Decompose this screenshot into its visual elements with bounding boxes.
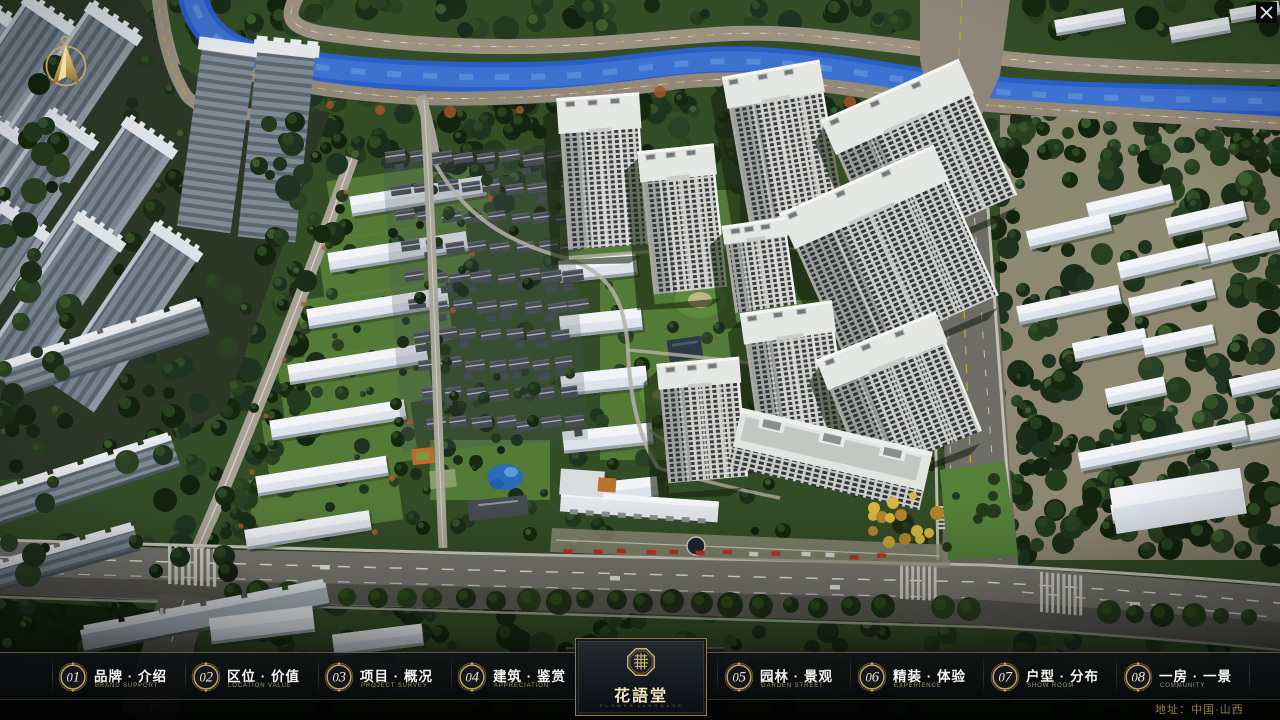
svg-text:04: 04 <box>465 670 479 686</box>
svg-text:01: 01 <box>66 670 80 686</box>
svg-text:02: 02 <box>199 670 213 686</box>
svg-text:07: 07 <box>998 670 1012 686</box>
svg-text:05: 05 <box>732 670 746 686</box>
svg-text:08: 08 <box>1131 670 1145 686</box>
svg-text:03: 03 <box>332 670 346 686</box>
svg-text:06: 06 <box>865 670 879 686</box>
